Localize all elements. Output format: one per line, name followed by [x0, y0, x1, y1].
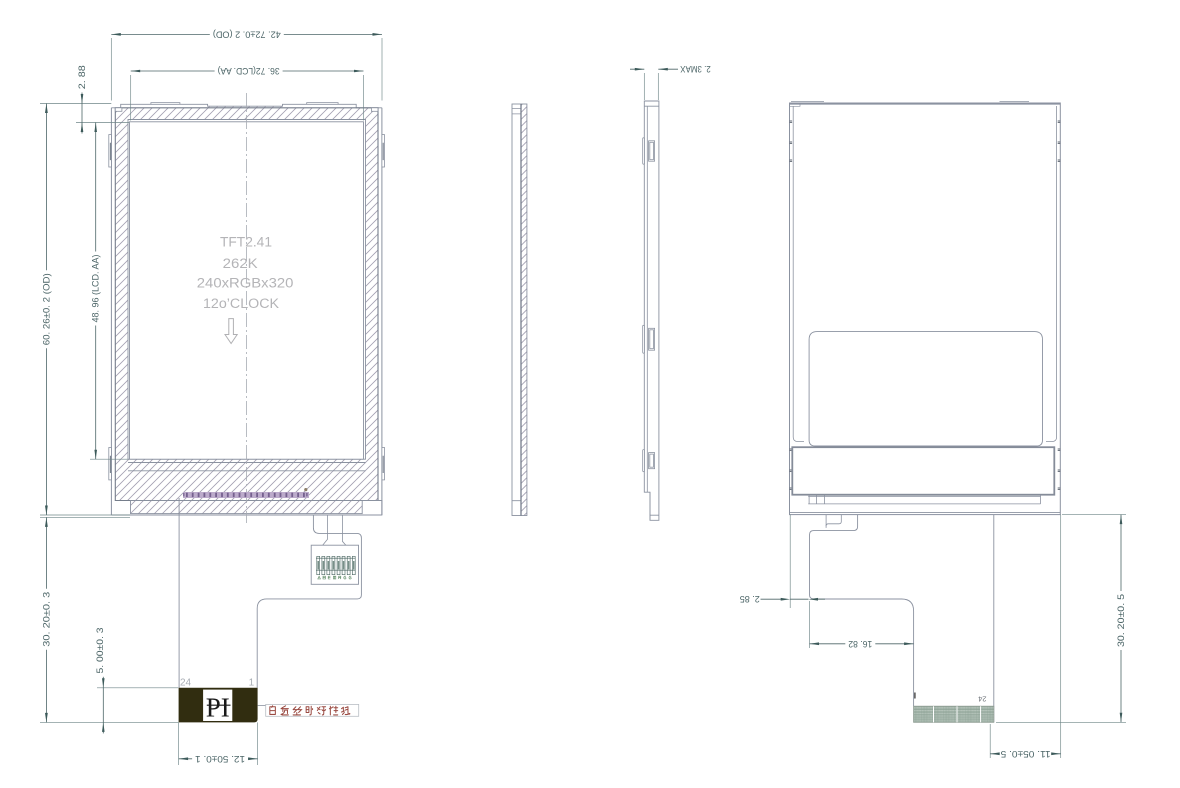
- svg-text:24: 24: [978, 695, 986, 704]
- svg-text:12. 50±0. 1: 12. 50±0. 1: [195, 754, 245, 764]
- svg-text:1: 1: [249, 678, 255, 689]
- svg-text:30. 20±0. 3: 30. 20±0. 3: [41, 592, 51, 647]
- svg-text:30. 20±0. 5: 30. 20±0. 5: [1116, 594, 1126, 647]
- svg-text:42. 72±0. 2 (OD): 42. 72±0. 2 (OD): [213, 29, 281, 39]
- svg-text:36. 72(LCD. AA): 36. 72(LCD. AA): [218, 66, 280, 76]
- svg-text:60. 26±0. 2 (OD): 60. 26±0. 2 (OD): [41, 273, 51, 345]
- svg-text:2. 3MAX: 2. 3MAX: [680, 64, 711, 74]
- svg-text:240xRGBx320: 240xRGBx320: [197, 276, 294, 292]
- svg-text:5. 00±0. 3: 5. 00±0. 3: [95, 628, 105, 674]
- svg-text:16. 82: 16. 82: [848, 639, 872, 649]
- svg-text:48. 96 (LCD. AA): 48. 96 (LCD. AA): [91, 255, 101, 323]
- svg-text:24: 24: [180, 678, 192, 689]
- svg-text:TFT2.41: TFT2.41: [220, 234, 272, 250]
- svg-text:2. 85: 2. 85: [740, 594, 760, 604]
- svg-text:11. 05±0. 5: 11. 05±0. 5: [1001, 749, 1051, 759]
- svg-text:262K: 262K: [223, 256, 259, 272]
- svg-text:2. 88: 2. 88: [77, 65, 87, 89]
- svg-text:12o’CLOCK: 12o’CLOCK: [203, 296, 280, 312]
- svg-text:PI: PI: [206, 693, 230, 723]
